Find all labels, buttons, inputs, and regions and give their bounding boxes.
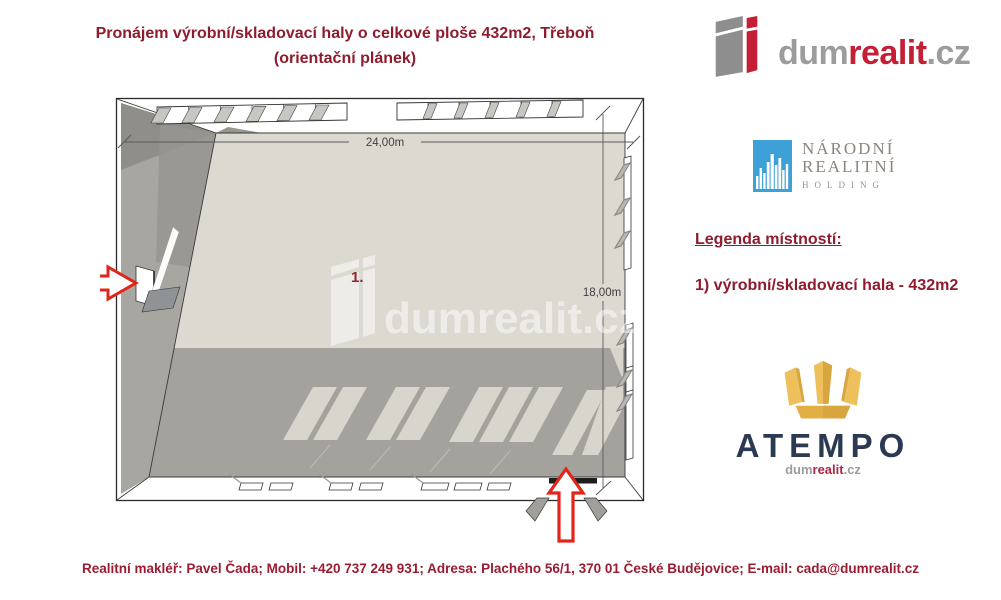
- agent-contact-footer: Realitní makléř: Pavel Čada; Mobil: +420…: [0, 561, 1001, 576]
- page-title-line2: (orientační plánek): [20, 47, 670, 72]
- skylight-group-right: [397, 100, 583, 120]
- skylight-group-left: [151, 103, 347, 124]
- watermark-text: dumrealit.cz: [384, 294, 641, 343]
- floor-plan: 24,00m 18,00m dumrealit.cz 1.: [100, 88, 656, 558]
- nrh-logo: NÁRODNÍ REALITNÍ HOLDING: [753, 140, 896, 192]
- crown-icon: [764, 360, 882, 424]
- legend-heading: Legenda místností:: [695, 231, 958, 249]
- nrh-logo-text: NÁRODNÍ REALITNÍ HOLDING: [802, 140, 896, 190]
- atempo-name: ATEMPO: [728, 427, 918, 465]
- nrh-line2: REALITNÍ: [802, 158, 896, 176]
- dumrealit-logo-text: dumrealit.cz: [778, 34, 970, 73]
- page-title: Pronájem výrobní/skladovací haly o celko…: [20, 22, 670, 72]
- atempo-sub-suffix: .cz: [844, 462, 861, 477]
- building-i-icon: [708, 14, 766, 78]
- brand-suffix-part: .cz: [927, 34, 971, 72]
- dumrealit-logo: dumrealit.cz: [708, 14, 970, 78]
- width-dimension-label: 24,00m: [366, 137, 404, 149]
- room-number-label: 1.: [351, 269, 364, 286]
- page-title-line1: Pronájem výrobní/skladovací haly o celko…: [20, 22, 670, 47]
- nrh-line1: NÁRODNÍ: [802, 140, 896, 158]
- room-legend: Legenda místností: 1) výrobní/skladovací…: [695, 231, 958, 295]
- atempo-sub-gray: dum: [785, 462, 812, 477]
- brand-red-part: realit: [848, 34, 926, 72]
- skyline-icon: [753, 140, 792, 192]
- atempo-logo: ATEMPO dumrealit.cz: [728, 360, 918, 477]
- legend-item: 1) výrobní/skladovací hala - 432m2: [695, 277, 958, 295]
- nrh-line3: HOLDING: [802, 180, 896, 190]
- atempo-sub-red: realit: [813, 462, 844, 477]
- brand-gray-part: dum: [778, 34, 848, 72]
